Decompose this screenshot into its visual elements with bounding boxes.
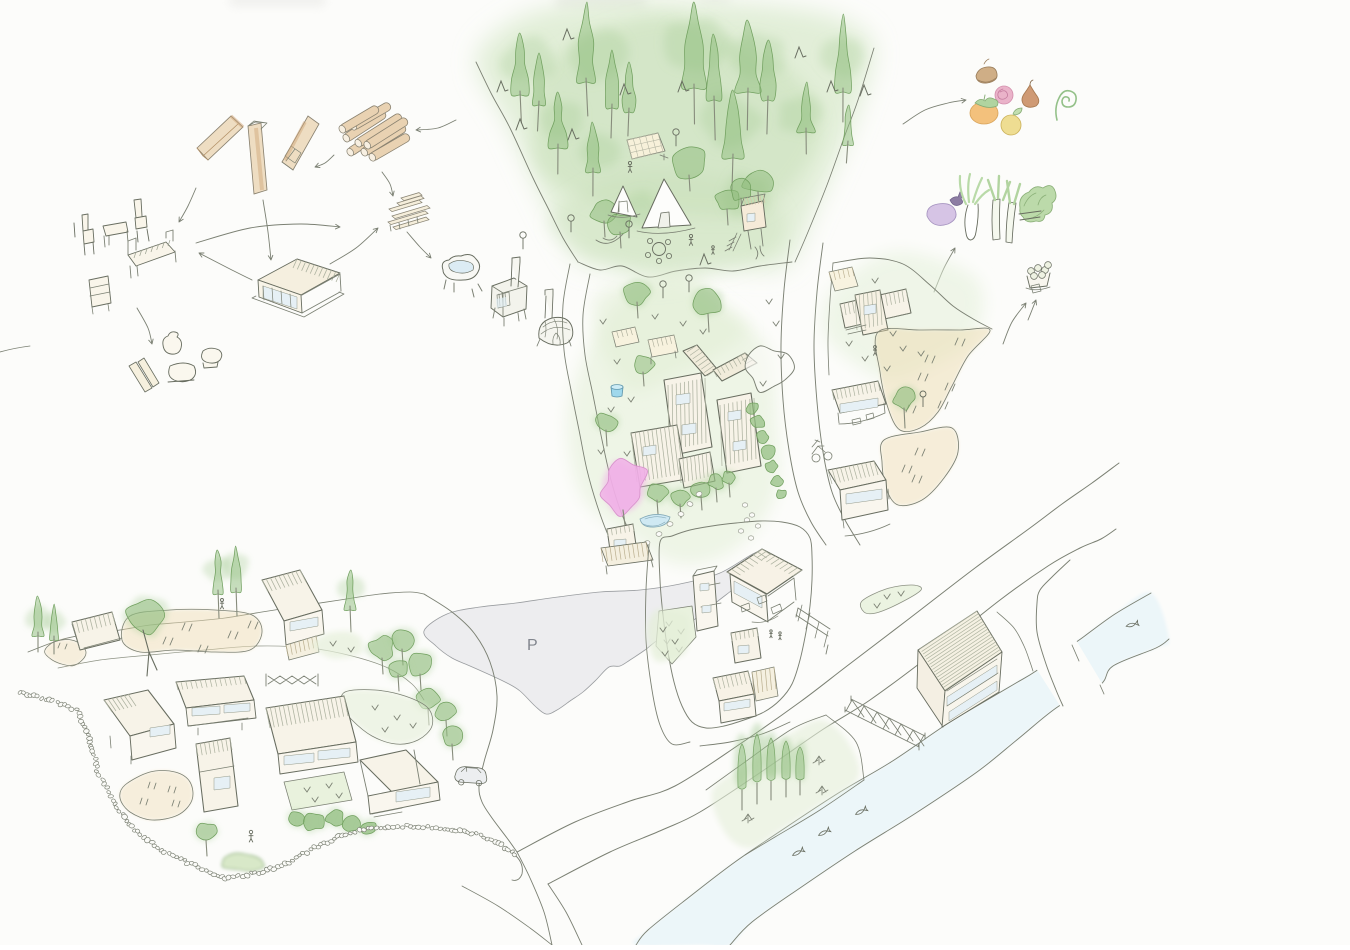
svg-text:P: P — [527, 637, 538, 654]
